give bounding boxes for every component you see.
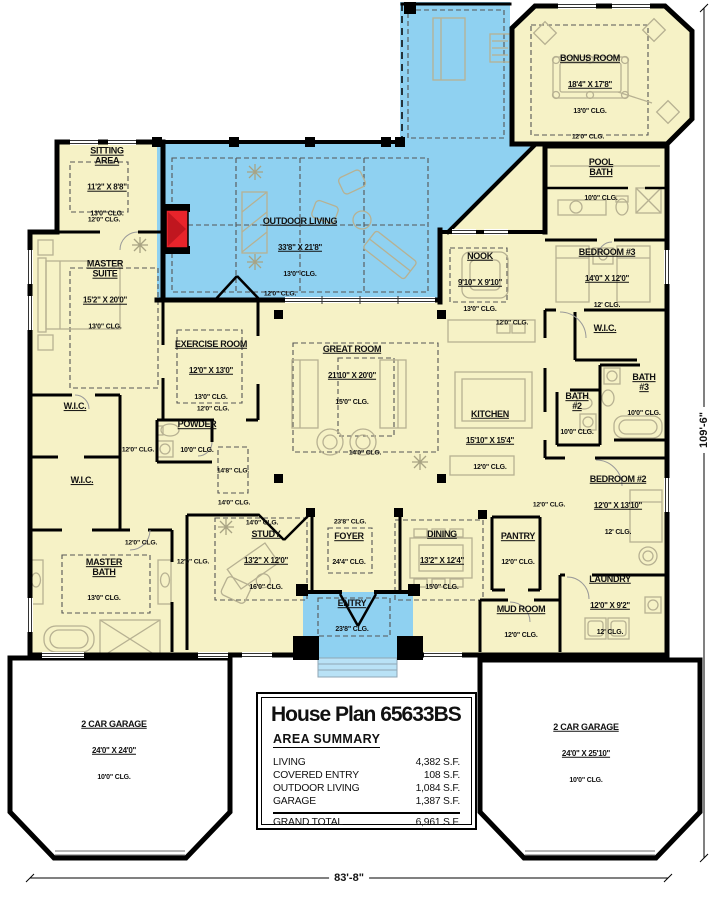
room-ceiling: 15'0" CLG.	[420, 584, 464, 592]
ceiling-note: 12'0" CLG.	[122, 447, 154, 454]
room-dims: 21'10" X 20'0"	[323, 372, 381, 381]
room-ceiling: 10'0" CLG.	[584, 195, 617, 203]
room-label-master-suite: MASTER SUITE 15'2" X 20'0" 13'0" CLG.	[83, 241, 127, 350]
ceiling-note: 14'8" CLG.	[217, 468, 249, 475]
room-dims: 15'10" X 15'4"	[466, 437, 514, 446]
plant-icon	[247, 164, 263, 180]
room-label-bath-2: BATH #2 10'0" CLG.	[560, 373, 593, 455]
room-name: FOYER	[332, 531, 365, 541]
area-row-value: 108 S.F.	[424, 770, 460, 781]
area-row-value: 1,084 S.F.	[416, 783, 460, 794]
area-row-living: LIVING 4,382 S.F.	[273, 757, 460, 768]
room-name: BEDROOM #3	[579, 247, 636, 257]
area-row-value: 6,961 S.F.	[416, 817, 460, 828]
room-name: MUD ROOM	[497, 604, 546, 614]
room-name: W.I.C.	[71, 475, 94, 485]
room-dims: 9'10" X 9'10"	[458, 279, 502, 288]
room-dims: 18'4" X 17'8"	[560, 81, 620, 90]
room-label-kitchen: KITCHEN 15'10" X 15'4" 12'0" CLG.	[466, 391, 514, 489]
room-ceiling: 10'0" CLG.	[560, 429, 593, 437]
room-name: POWDER	[178, 419, 217, 429]
room-dims: 24'0" X 25'10"	[553, 750, 618, 759]
area-summary-heading: AREA SUMMARY	[273, 732, 380, 748]
room-ceiling: 13'0" CLG.	[263, 271, 337, 279]
area-row-label: GARAGE	[273, 796, 316, 807]
area-row-label: GRAND TOTAL	[273, 817, 343, 828]
room-name: EXERCISE ROOM	[175, 339, 247, 349]
room-name: SITTING AREA	[87, 146, 126, 166]
area-row-label: OUTDOOR LIVING	[273, 783, 359, 794]
room-dims: 11'2" X 8'8"	[87, 184, 126, 193]
room-ceiling: 12'0" CLG.	[497, 632, 546, 640]
room-label-master-bath: MASTER BATH 13'0" CLG.	[86, 539, 122, 621]
room-name: LAUNDRY	[589, 574, 631, 584]
room-label-outdoor-living: OUTDOOR LIVING 33'8" X 21'8" 13'0" CLG.	[263, 198, 337, 296]
room-dims: 13'2" X 12'4"	[420, 557, 464, 566]
room-label-garage-left: 2 CAR GARAGE 24'0" X 24'0" 10'0" CLG.	[81, 701, 146, 799]
room-label-wic-lower: W.I.C.	[71, 457, 94, 503]
room-ceiling: 13'0" CLG.	[86, 595, 122, 603]
room-dims: 15'2" X 20'0"	[83, 297, 127, 306]
room-name: DINING	[420, 529, 464, 539]
room-ceiling: 12' CLG.	[590, 529, 647, 537]
room-label-bath-3: BATH #3 10'0" CLG.	[627, 354, 660, 436]
room-label-wic-right: W.I.C.	[594, 305, 617, 351]
room-name: BEDROOM #2	[590, 474, 647, 484]
room-name: OUTDOOR LIVING	[263, 216, 337, 226]
overall-width-dimension: 83'-8"	[329, 872, 369, 884]
room-label-bonus-room: BONUS ROOM 18'4" X 17'8" 13'0" CLG.	[560, 35, 620, 133]
ceiling-note: 12'0" CLG.	[197, 406, 229, 413]
room-ceiling: 16'0" CLG.	[244, 584, 288, 592]
room-name: PANTRY	[501, 531, 535, 541]
room-name: W.I.C.	[594, 323, 617, 333]
area-row-value: 1,387 S.F.	[416, 796, 460, 807]
ceiling-note: 12'0" CLG.	[533, 502, 565, 509]
area-summary-rows: LIVING 4,382 S.F. COVERED ENTRY 108 S.F.…	[273, 757, 460, 828]
room-label-entry: ENTRY 23'8" CLG.	[335, 580, 368, 652]
room-name: STUDY	[244, 529, 288, 539]
ceiling-note: 12'0" CLG.	[496, 320, 528, 327]
ceiling-note: 14'0" CLG.	[218, 500, 250, 507]
ceiling-note: 14'0" CLG.	[246, 520, 278, 527]
area-row-outdoor-living: OUTDOOR LIVING 1,084 S.F.	[273, 783, 460, 794]
room-ceiling: 15'0" CLG.	[323, 399, 381, 407]
title-block-inner: House Plan 65633BS AREA SUMMARY LIVING 4…	[261, 697, 472, 825]
room-dims: 33'8" X 21'8"	[263, 244, 337, 253]
room-name: POOL BATH	[584, 157, 617, 177]
room-ceiling: 13'0" CLG.	[560, 108, 620, 116]
room-label-wic-upper: W.I.C.	[64, 383, 87, 429]
plant-icon	[412, 454, 428, 470]
room-dims: 24'0" X 24'0"	[81, 747, 146, 756]
plant-icon	[247, 254, 263, 270]
room-ceiling: 10'0" CLG.	[553, 777, 618, 785]
room-name: BATH #2	[560, 391, 593, 411]
room-ceiling: 10'0" CLG.	[178, 447, 217, 455]
room-label-dining: DINING 13'2" X 12'4" 15'0" CLG.	[420, 511, 464, 609]
room-label-garage-right: 2 CAR GARAGE 24'0" X 25'10" 10'0" CLG.	[553, 704, 618, 802]
room-ceiling: 12' CLG.	[589, 629, 631, 637]
room-name: BONUS ROOM	[560, 53, 620, 63]
room-dims: 12'0" X 13'10"	[590, 502, 647, 511]
area-row-label: COVERED ENTRY	[273, 770, 359, 781]
room-dims: 13'2" X 12'0"	[244, 557, 288, 566]
room-ceiling: 24'4" CLG.	[332, 559, 365, 567]
overall-depth-dimension: 109'-6"	[698, 407, 710, 453]
room-dims: 14'0" X 12'0"	[579, 275, 636, 284]
room-dims: 12'0" X 13'0"	[175, 367, 247, 376]
floor-plan: SITTING AREA 11'2" X 8'8" 13'0" CLG. MAS…	[0, 0, 717, 900]
area-row-garage: GARAGE 1,387 S.F.	[273, 796, 460, 807]
room-name: KITCHEN	[466, 409, 514, 419]
ceiling-note: 12'0" CLG.	[572, 134, 604, 141]
room-ceiling: 23'8" CLG.	[335, 626, 368, 634]
ceiling-note: 12'0" CLG.	[177, 559, 209, 566]
fireplace-icon	[164, 204, 190, 254]
title-block: House Plan 65633BS AREA SUMMARY LIVING 4…	[256, 692, 477, 830]
room-label-mud-room: MUD ROOM 12'0" CLG.	[497, 586, 546, 658]
ceiling-note: 14'0" CLG.	[349, 450, 381, 457]
ceiling-note: 23'8" CLG.	[334, 519, 366, 526]
plant-icon	[132, 237, 148, 253]
room-name: MASTER SUITE	[83, 259, 127, 279]
area-row-label: LIVING	[273, 757, 306, 768]
room-ceiling: 13'0" CLG.	[175, 394, 247, 402]
ceiling-note: 12'0" CLG.	[88, 217, 120, 224]
area-row-grand-total: GRAND TOTAL 6,961 S.F.	[273, 812, 460, 828]
area-row-covered-entry: COVERED ENTRY 108 S.F.	[273, 770, 460, 781]
plant-icon	[218, 519, 234, 535]
room-ceiling: 12'0" CLG.	[466, 464, 514, 472]
room-name: NOOK	[458, 251, 502, 261]
ceiling-note: 12'0" CLG.	[125, 540, 157, 547]
room-label-great-room: GREAT ROOM 21'10" X 20'0" 15'0" CLG.	[323, 326, 381, 424]
room-ceiling: 13'0" CLG.	[458, 306, 502, 314]
room-name: W.I.C.	[64, 401, 87, 411]
room-name: ENTRY	[335, 598, 368, 608]
room-ceiling: 10'0" CLG.	[81, 774, 146, 782]
room-dims: 12'0" X 9'2"	[589, 602, 631, 611]
room-label-nook: NOOK 9'10" X 9'10" 13'0" CLG.	[458, 233, 502, 331]
room-label-bedroom-2: BEDROOM #2 12'0" X 13'10" 12' CLG.	[590, 456, 647, 554]
room-label-pool-bath: POOL BATH 10'0" CLG.	[584, 139, 617, 221]
ceiling-note: 12'0" CLG.	[264, 291, 296, 298]
room-label-pantry: PANTRY 12'0" CLG.	[501, 513, 535, 585]
room-name: 2 CAR GARAGE	[81, 719, 146, 729]
room-label-laundry: LAUNDRY 12'0" X 9'2" 12' CLG.	[589, 556, 631, 654]
room-name: 2 CAR GARAGE	[553, 722, 618, 732]
room-name: MASTER BATH	[86, 557, 122, 577]
area-row-value: 4,382 S.F.	[416, 757, 460, 768]
room-ceiling: 10'0" CLG.	[627, 410, 660, 418]
room-ceiling: 12'0" CLG.	[501, 559, 535, 567]
plan-title: House Plan 65633BS	[271, 703, 462, 727]
room-ceiling: 13'0" CLG.	[83, 324, 127, 332]
room-name: BATH #3	[627, 372, 660, 392]
room-name: GREAT ROOM	[323, 344, 381, 354]
